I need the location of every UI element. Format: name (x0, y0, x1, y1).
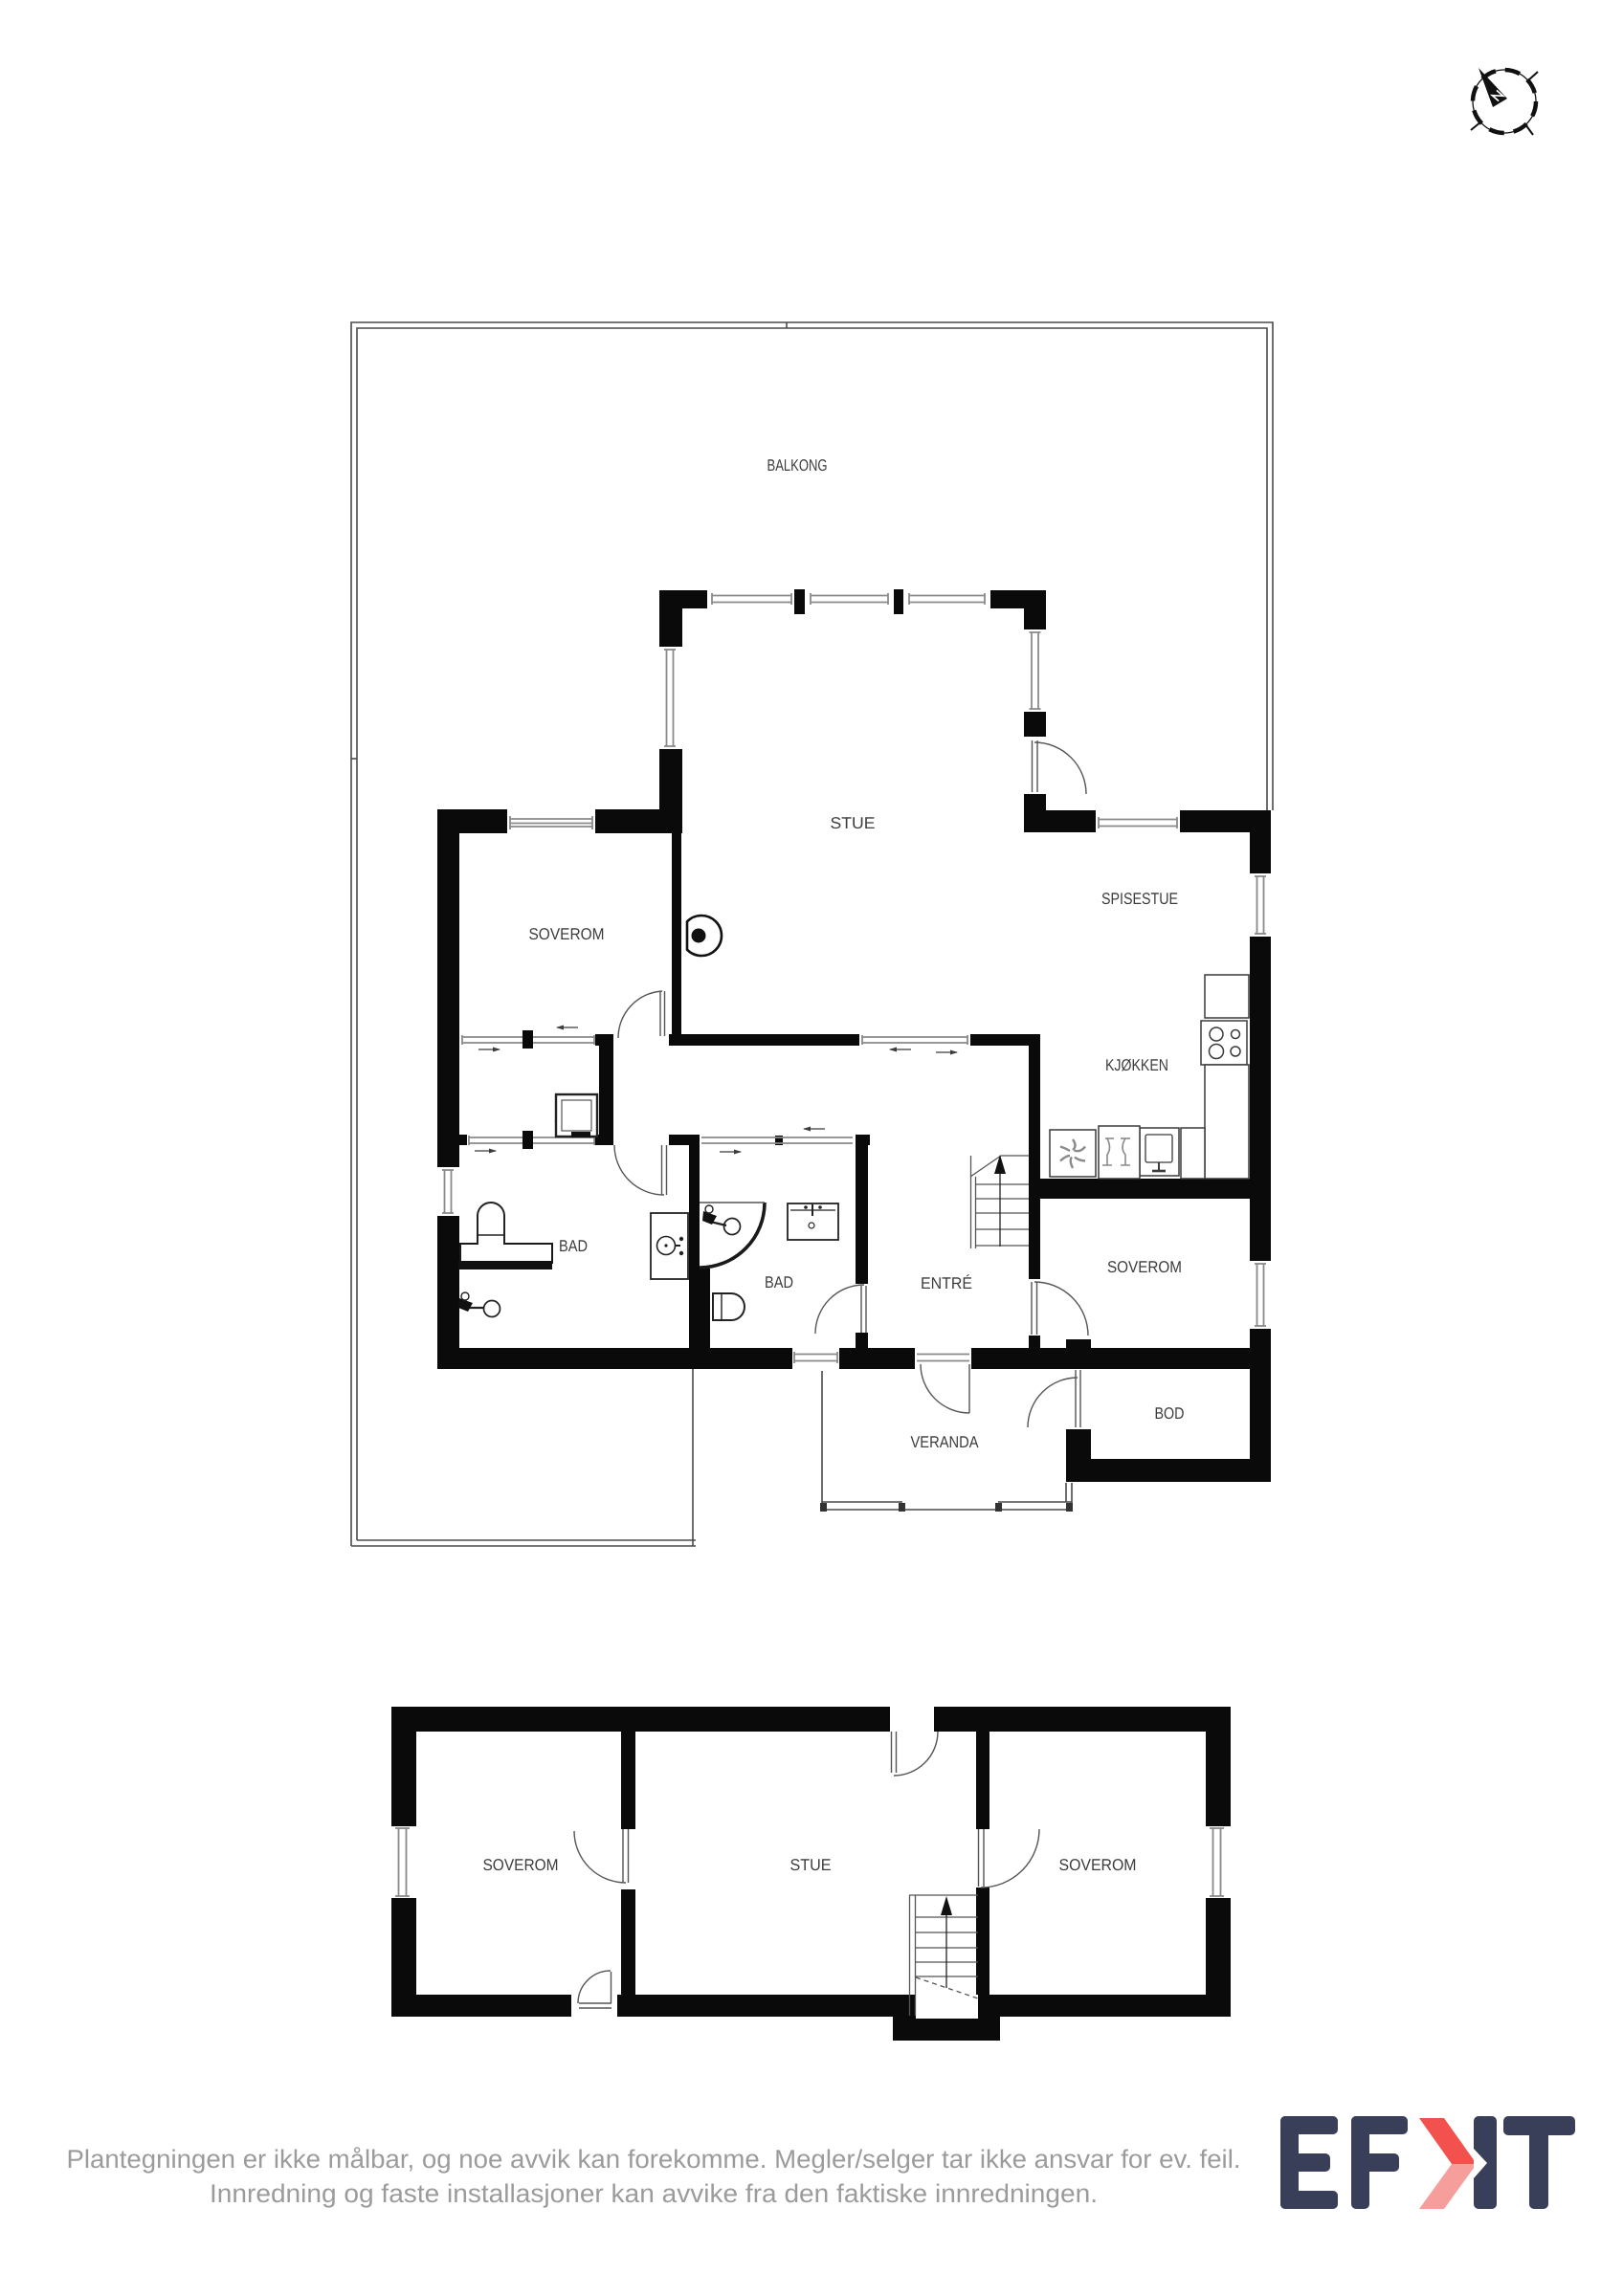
svg-text:SOVEROM: SOVEROM (1059, 1856, 1137, 1874)
svg-text:ENTRÉ: ENTRÉ (921, 1274, 972, 1292)
svg-text:BOD: BOD (1155, 1404, 1185, 1423)
svg-text:BAD: BAD (559, 1237, 588, 1255)
svg-text:STUE: STUE (790, 1856, 832, 1874)
svg-text:SOVEROM: SOVEROM (529, 925, 605, 943)
svg-text:Plantegningen er ikke målbar,: Plantegningen er ikke målbar, og noe avv… (67, 2145, 1241, 2174)
svg-text:SPISESTUE: SPISESTUE (1101, 890, 1178, 908)
svg-text:SOVEROM: SOVEROM (483, 1856, 559, 1874)
svg-text:Innredning og faste installasj: Innredning og faste installasjoner kan a… (210, 2179, 1098, 2208)
svg-text:STUE: STUE (831, 814, 876, 832)
svg-text:VERANDA: VERANDA (911, 1433, 980, 1451)
svg-text:SOVEROM: SOVEROM (1107, 1258, 1182, 1276)
svg-text:BALKONG: BALKONG (767, 456, 828, 475)
svg-text:BAD: BAD (765, 1273, 793, 1291)
svg-text:KJØKKEN: KJØKKEN (1105, 1056, 1168, 1074)
